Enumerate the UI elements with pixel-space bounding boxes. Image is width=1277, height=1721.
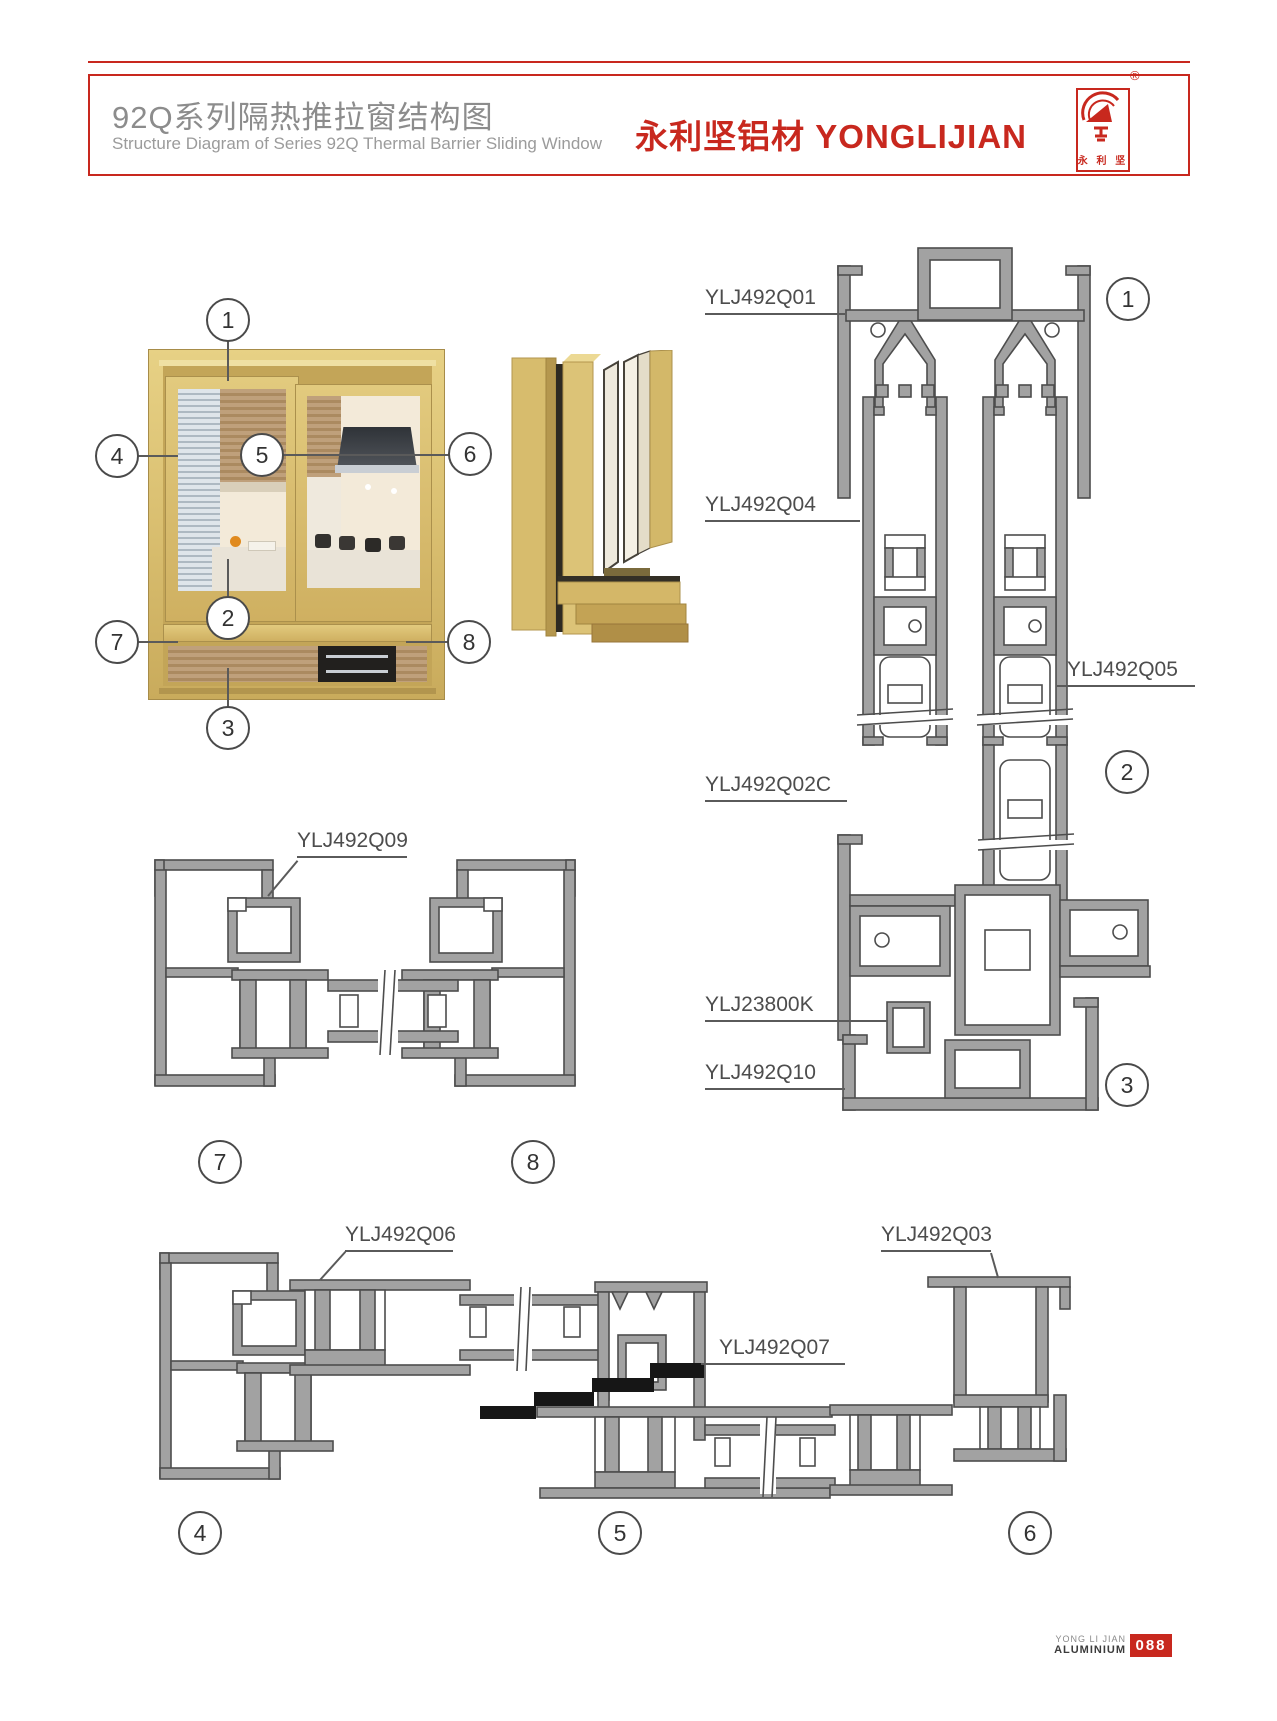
logo-mark-icon [1078, 90, 1124, 148]
label-ylj492q01: YLJ492Q01 [705, 286, 845, 315]
photo-callout-8: 8 [447, 620, 491, 664]
label-ylj492q03: YLJ492Q03 [881, 1223, 991, 1252]
photo-callout-5: 5 [240, 433, 284, 477]
brand-en: YONGLIJIAN [815, 118, 1027, 155]
label-ylj492q07: YLJ492Q07 [701, 1336, 845, 1365]
label-ylj23800k: YLJ23800K [705, 993, 887, 1022]
brand-wordmark: 永利坚铝材 YONGLIJIAN [635, 110, 1027, 158]
photo-callout-6: 6 [448, 432, 492, 476]
range-hood [337, 427, 417, 469]
section-callout-8: 8 [511, 1140, 555, 1184]
countertop [212, 547, 286, 591]
jars [248, 541, 276, 551]
label-ylj492q02c: YLJ492Q02C [705, 773, 847, 802]
oven-handle-bottom [326, 670, 388, 673]
left-sash [165, 376, 299, 622]
page-number-badge: 088 [1130, 1634, 1172, 1657]
lower-panel-frame [163, 642, 432, 686]
hood-steel-edge [335, 465, 419, 473]
brand-cn: 永利坚铝材 [635, 118, 805, 155]
section-callout-4: 4 [178, 1511, 222, 1555]
leader-8 [406, 641, 448, 643]
label-ylj492q06: YLJ492Q06 [345, 1223, 453, 1252]
sash-track-area [163, 366, 432, 624]
section-callout-6: 6 [1008, 1511, 1052, 1555]
oven-handle-top [326, 655, 388, 658]
section-callout-2: 2 [1105, 750, 1149, 794]
label-ylj492q10: YLJ492Q10 [705, 1061, 845, 1090]
registered-mark: ® [1130, 68, 1140, 83]
photo-callout-1: 1 [206, 298, 250, 342]
section-callout-1: 1 [1106, 277, 1150, 321]
frame-bottom-shade [159, 688, 436, 694]
footer-brand-line1: YONG LI JIAN [1020, 1634, 1126, 1644]
oven [318, 646, 396, 682]
page-subtitle: Structure Diagram of Series 92Q Thermal … [112, 134, 602, 154]
label-ylj492q09: YLJ492Q09 [297, 829, 407, 858]
cabinet-shelf [220, 482, 286, 492]
backsplash [341, 396, 420, 550]
bottom-horizontal-section-drawing [140, 1245, 1080, 1515]
pots [315, 534, 331, 548]
top-red-rule [88, 61, 1190, 63]
corner-3d-render [500, 350, 690, 650]
leader-3 [227, 668, 229, 708]
photo-callout-2: 2 [206, 596, 250, 640]
right-sash-glass [307, 396, 420, 588]
photo-callout-4: 4 [95, 434, 139, 478]
section-callout-3: 3 [1105, 1063, 1149, 1107]
label-ylj492q05: YLJ492Q05 [1057, 658, 1195, 687]
left-sash-glass [178, 389, 286, 591]
leader-7 [138, 641, 178, 643]
photo-callout-7: 7 [95, 620, 139, 664]
photo-callout-3: 3 [206, 706, 250, 750]
leader-2 [227, 559, 229, 598]
mid-horizontal-section-drawing [140, 820, 590, 1120]
window-photo [148, 349, 445, 700]
page-title: 92Q系列隔热推拉窗结构图 [112, 92, 494, 137]
right-sash [295, 384, 432, 622]
leader-1 [227, 341, 229, 381]
leader-5-6 [283, 454, 449, 456]
section-callout-5: 5 [598, 1511, 642, 1555]
logo-caption: 永 利 坚 [1076, 152, 1130, 167]
counter-right [307, 550, 420, 588]
footer-brand-line2: ALUMINIUM [1020, 1644, 1126, 1656]
page: 92Q系列隔热推拉窗结构图 Structure Diagram of Serie… [0, 0, 1277, 1721]
mid-sill [163, 624, 432, 642]
leader-4 [138, 455, 178, 457]
lower-panel-glass [168, 646, 427, 682]
label-ylj492q04: YLJ492Q04 [705, 493, 860, 522]
section-callout-7: 7 [198, 1140, 242, 1184]
